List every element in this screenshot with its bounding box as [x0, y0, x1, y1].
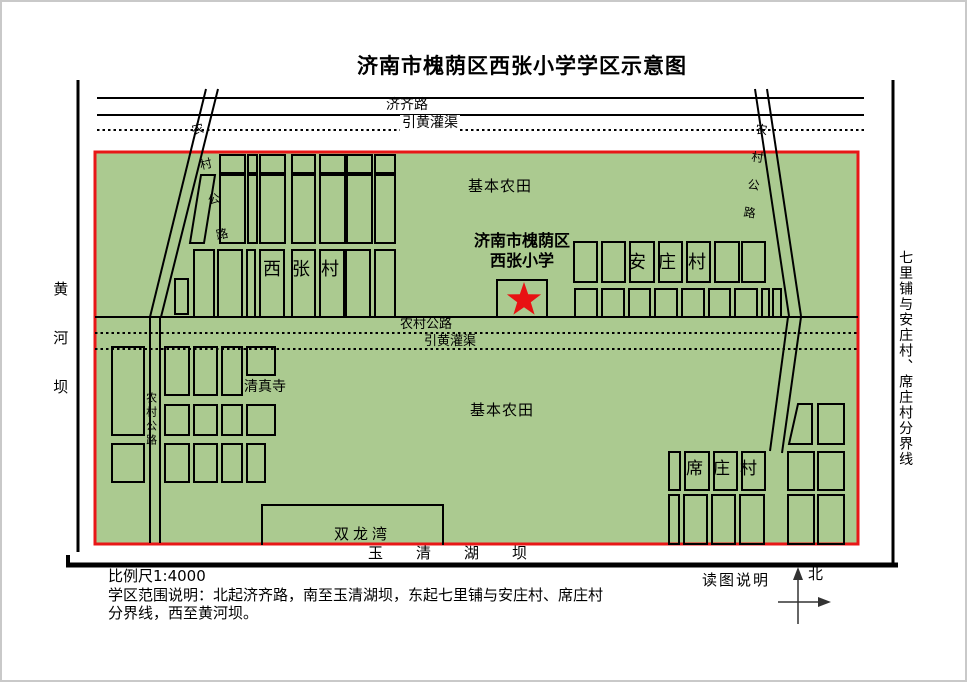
- mosque-label: 清真寺: [244, 379, 286, 395]
- page-title: 济南市槐荫区西张小学学区示意图: [282, 54, 762, 78]
- anzhuang-village-label: 安庄村: [628, 253, 718, 274]
- canal-top-label: 引黄灌渠: [400, 115, 460, 131]
- left-vertical-road-label: 农村公路: [144, 392, 157, 448]
- north-label: 北: [808, 566, 823, 583]
- district-description-line2: 分界线，西至黄河坝。: [108, 605, 258, 622]
- legend-title: 读图说明: [702, 572, 770, 589]
- xizhang-village-label: 西张村: [263, 260, 350, 281]
- district-description-line1: 学区范围说明：北起济齐路，南至玉清湖坝，东起七里铺与安庄村、席庄村: [108, 587, 603, 604]
- mid-canal-label: 引黄灌渠: [424, 335, 476, 350]
- xizhuang-village-label: 席庄村: [686, 460, 767, 480]
- jiqi-road-label: 济齐路: [386, 97, 428, 113]
- school-district-map-page: 济南市槐荫区西张小学学区示意图 济齐路 引黄灌渠 基本农田 济南市槐荫区 西张小…: [0, 0, 967, 682]
- shuanglongwan-label: 双龙湾: [334, 526, 391, 543]
- yellow-river-dam-label: 黄河坝: [51, 281, 68, 428]
- map-scale-label: 比例尺1:4000: [108, 568, 206, 585]
- farmland-north-label: 基本农田: [468, 178, 532, 195]
- east-boundary-label: 七里铺与安庄村、席庄村分界线: [897, 250, 913, 467]
- compass-icon: [778, 567, 831, 624]
- school-name-label: 济南市槐荫区 西张小学: [454, 231, 590, 271]
- yuqinghu-dam-label: 玉清湖坝: [368, 545, 560, 562]
- mid-rural-road-label: 农村公路: [400, 318, 452, 333]
- school-name-line1: 济南市槐荫区: [454, 231, 590, 251]
- school-name-line2: 西张小学: [454, 251, 590, 271]
- farmland-south-label: 基本农田: [470, 402, 534, 419]
